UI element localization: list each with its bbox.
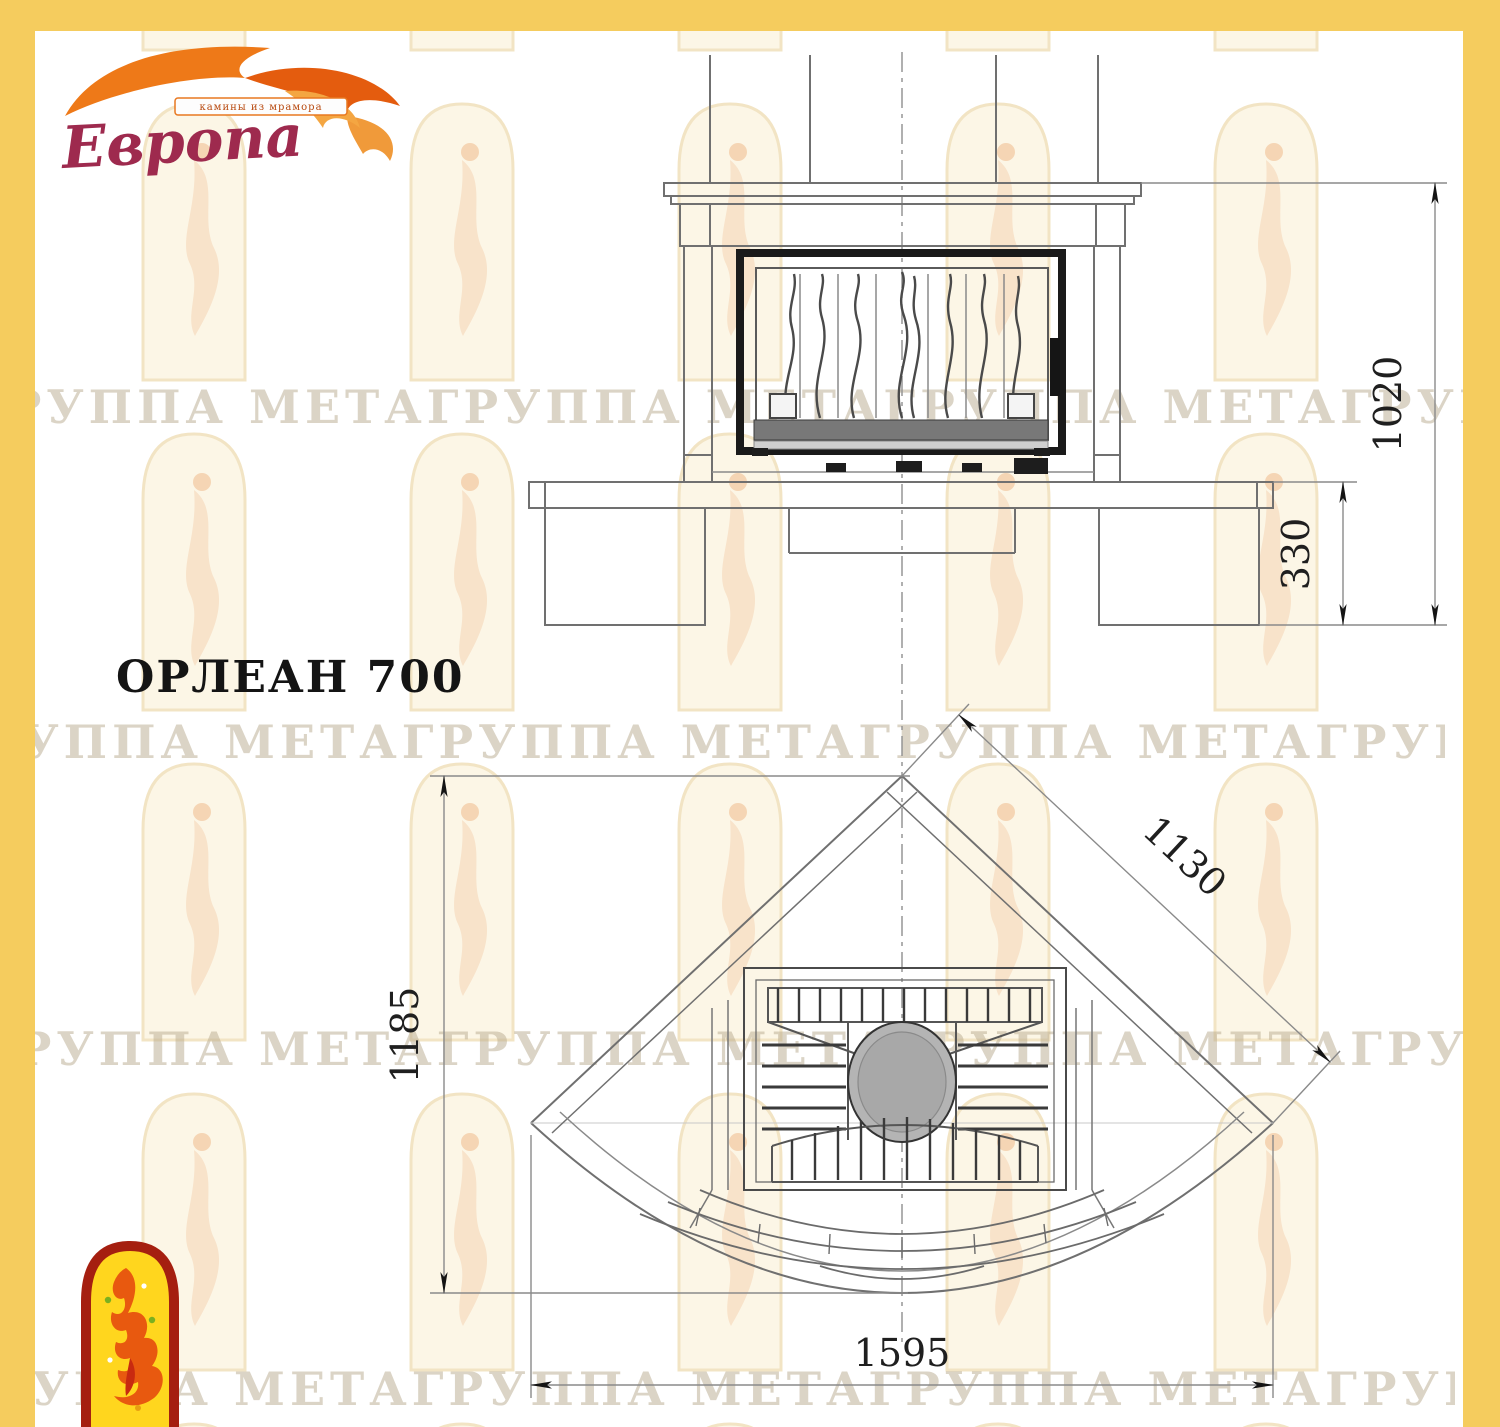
firebird-emblem-icon (78, 1238, 182, 1427)
page-border-right (1463, 0, 1500, 1427)
page: ГРУППА МЕТАГРУППА МЕТАГРУППА МЕТАГРУППА … (0, 0, 1500, 1427)
chimney-lines (710, 55, 1098, 183)
fireplace-technical-drawing: 1020 330 (0, 0, 1500, 1427)
door-handle (1050, 338, 1060, 396)
front-elevation-view (529, 52, 1273, 1345)
plan-hearth-steps (640, 1190, 1164, 1279)
page-border-left (0, 0, 35, 1427)
dim-label-height: 1020 (1366, 356, 1410, 453)
logo-brand-text: Европа (58, 101, 305, 182)
extension-line (902, 704, 969, 776)
dim-label-diagonal: 1130 (1134, 807, 1235, 905)
dimension-line-1130 (959, 715, 1330, 1062)
page-border-top (0, 0, 1500, 31)
plan-bottom-grate-bars (792, 1117, 1020, 1180)
firebox-door (740, 253, 1062, 451)
dim-label-hearth-height: 330 (1274, 518, 1318, 591)
hearth-slab (529, 482, 1273, 508)
dim-label-depth: 1185 (383, 987, 427, 1084)
model-title: ОРЛЕАН 700 (116, 652, 464, 703)
door-bottom-band (754, 420, 1048, 440)
front-view-dimensions: 1020 330 (1141, 183, 1447, 625)
plan-top-grate-bars (778, 988, 1030, 1022)
dim-label-width: 1595 (854, 1331, 951, 1375)
europa-logo: камины из мрамора Европа (55, 36, 435, 211)
